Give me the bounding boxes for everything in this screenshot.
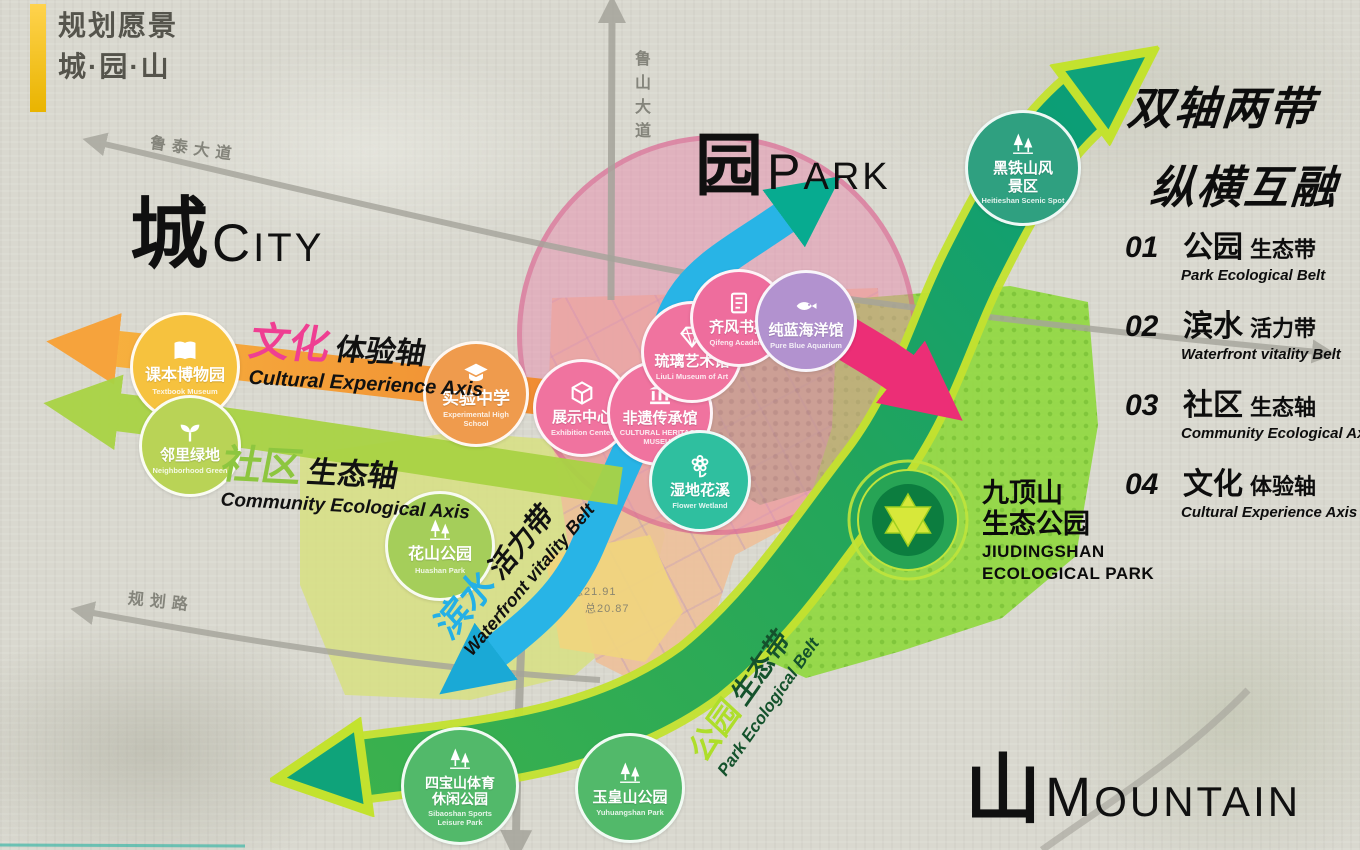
flower-icon bbox=[686, 452, 714, 480]
jiudingshan-star-emblem bbox=[846, 458, 970, 582]
sprout-icon bbox=[176, 417, 204, 445]
logo-line1: 规划愿景 bbox=[58, 6, 178, 47]
cultural-axis-label: 文化 体验轴 Cultural Experience Axis bbox=[248, 309, 487, 402]
headline: 双轴两带 纵横互融 bbox=[1120, 72, 1346, 216]
park-cn: 园 bbox=[695, 110, 763, 209]
badge-heitieshan: 黑铁山风景区 Heitieshan Scenic Spot bbox=[965, 110, 1081, 226]
road-bottom-teal bbox=[0, 845, 245, 846]
legend-item-park-belt: 01 公园 生态带 Park Ecological Belt bbox=[1125, 222, 1360, 284]
book-icon bbox=[725, 289, 753, 317]
fish-icon bbox=[792, 292, 820, 320]
zone-label-city: 城 CITY bbox=[130, 172, 324, 284]
legend: 01 公园 生态带 Park Ecological Belt 02 滨水 活力带… bbox=[1125, 222, 1360, 538]
community-cn-sub: 生态轴 bbox=[304, 447, 402, 495]
headline-line2: 纵横互融 bbox=[1148, 151, 1341, 216]
cultural-cn-sub: 体验轴 bbox=[332, 325, 430, 373]
badge-sibaoshan-park: 四宝山体育休闲公园 Sibaoshan Sports Leisure Park bbox=[401, 727, 519, 845]
trees-icon bbox=[446, 745, 474, 773]
cube-icon bbox=[568, 379, 596, 407]
zone-label-mountain: 山 MOUNTAIN bbox=[965, 728, 1301, 838]
badge-yuhuangshan-park: 玉皇山公园 Yuhuangshan Park bbox=[575, 733, 685, 843]
logo-text: 规划愿景 城·园·山 bbox=[58, 4, 178, 112]
headline-line1: 双轴两带 bbox=[1126, 83, 1318, 134]
logo-line2: 城·园·山 bbox=[58, 47, 178, 88]
trees-icon bbox=[1009, 130, 1037, 158]
mountain-cn: 山 bbox=[965, 728, 1041, 838]
jiudingshan-en1: JIUDINGSHAN bbox=[982, 542, 1154, 562]
planning-diagram: 鲁泰大道 鲁山大道 规划路 总21.91 总20.87 规划愿景 城·园·山 城… bbox=[0, 0, 1360, 850]
legend-item-waterfront: 02 滨水 活力带 Waterfront vitality Belt bbox=[1125, 301, 1360, 363]
badge-aquarium: 纯蓝海洋馆 Pure Blue Aquarium bbox=[755, 270, 857, 372]
zone-label-park: 园 PARK bbox=[695, 110, 891, 209]
badge-wetland: 湿地花溪 Flower Wetland bbox=[649, 430, 751, 532]
plan-logo: 规划愿景 城·园·山 bbox=[30, 4, 178, 112]
city-en: CITY bbox=[212, 213, 324, 274]
open-book-icon bbox=[171, 337, 199, 365]
logo-yellow-bar bbox=[30, 4, 46, 112]
legend-item-community: 03 社区 生态轴 Community Ecological Axis bbox=[1125, 380, 1360, 442]
jiudingshan-en2: ECOLOGICAL PARK bbox=[982, 564, 1154, 584]
park-en: PARK bbox=[767, 143, 891, 201]
mountain-en: MOUNTAIN bbox=[1045, 765, 1301, 829]
cultural-cn-main: 文化 bbox=[245, 309, 336, 371]
community-axis-label: 社区 生态轴 Community Ecological Axis bbox=[220, 432, 473, 525]
city-cn: 城 bbox=[130, 172, 208, 284]
legend-item-cultural: 04 文化 体验轴 Cultural Experience Axis bbox=[1125, 459, 1360, 521]
road-lushan-avenue-north bbox=[611, 16, 612, 300]
community-cn-main: 社区 bbox=[217, 432, 308, 494]
trees-icon bbox=[616, 759, 644, 787]
